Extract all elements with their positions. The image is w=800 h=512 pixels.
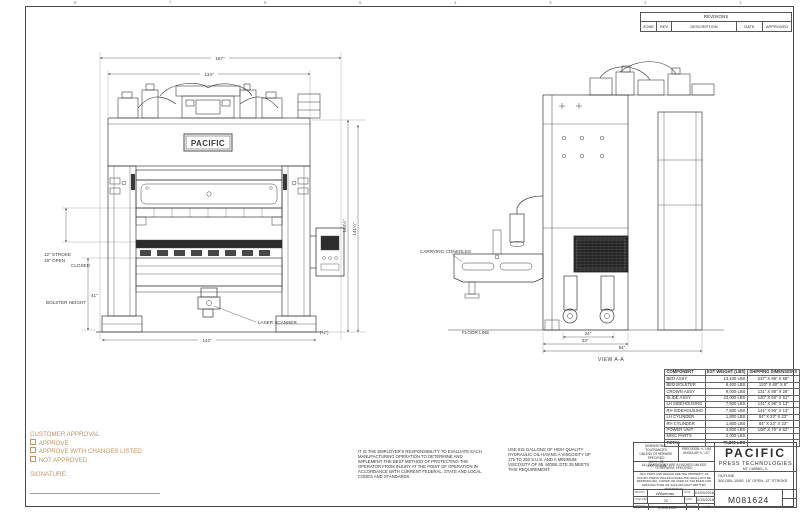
dim-foot: (¾") <box>320 330 329 335</box>
hydraulic-oil-note: USE 515 GALLONS OF HIGH QUALITY HYDRAULI… <box>508 448 596 473</box>
approval-option-label: APPROVE <box>39 440 69 447</box>
side-dim-3: 54" <box>619 345 626 350</box>
label-bolster-height: BOLSTER HEIGHT <box>46 300 86 305</box>
approval-option-label: APPROVE WITH CHANGES LISTED <box>39 448 142 455</box>
label-stroke: 12" STROKE <box>44 252 71 257</box>
checked-date-value: 2/15/2018 <box>697 497 714 503</box>
not-approved-checkbox <box>30 456 36 462</box>
tolerance-title-2: UNLESS OTHERWISE SPECIFIED <box>634 452 678 460</box>
checked-date-label: DATE <box>685 497 697 503</box>
pullback-cylinders <box>545 276 614 330</box>
components-table: COMPONENT EST WEIGHT (LBS) SHIPPING DIME… <box>664 369 800 447</box>
control-pendant <box>310 228 344 276</box>
machine-feet <box>96 316 322 332</box>
drawing-title-value: 300 DBL-10/60, 18" OPEN, 12" STROKE <box>718 479 796 485</box>
front-view: 167" 134" 142" 144½" 141½" 12" STROKE 18… <box>44 52 366 343</box>
title-block: DIMENSIONAL TOLERANCES UNLESS OTHERWISE … <box>633 442 797 508</box>
drawn-row: DRAWN LWiseman DATE 01/09/2018 <box>634 490 714 497</box>
approve-checkbox <box>30 439 36 445</box>
weight-row: WEIGHT 0,000 LBS SCALE 1:16 <box>634 504 714 510</box>
drawn-date-label: DATE <box>683 490 695 496</box>
rev-cell <box>783 499 796 507</box>
side-hydraulics <box>588 62 714 95</box>
company-block: PACIFIC PRESS TECHNOLOGIES MT. CARMEL, I… <box>715 443 796 472</box>
laser-scanner <box>198 288 220 317</box>
size-cell <box>783 490 796 499</box>
company-location: MT. CARMEL, IL <box>715 467 796 471</box>
tolerance-cell-2: PRECISION +/- 1/64 ANGULAR +/- 1/2° <box>679 443 714 461</box>
sheet-rev-cells <box>782 490 796 508</box>
view-label: VIEW A-A <box>598 357 624 363</box>
signature-line <box>30 493 160 494</box>
side-dim-1: 24" <box>585 331 592 336</box>
proprietary-note: THIS PRINT AND DESIGN ARE THE PROPERTY O… <box>634 472 714 490</box>
tolerance-angular: ANGULAR +/- 1/2° <box>679 451 714 455</box>
components-col-weight: EST WEIGHT (LBS) <box>705 370 747 376</box>
table-row: LH CYLINDER1,800 LBS84" X 23" X 23" <box>665 414 800 420</box>
dim-base-width: 142" <box>202 338 212 343</box>
drawn-label: DRAWN <box>634 490 648 496</box>
table-row: LH SIDEHOUSING7,500 LBS141" X 96" X 13" <box>665 401 800 407</box>
checked-row: CHECKED JC DATE 2/15/2018 <box>634 497 714 504</box>
employer-responsibility-note: IT IS THE EMPLOYER'S RESPONSIBILITY TO E… <box>358 450 484 480</box>
pacific-logo-plate: PACIFIC <box>184 134 232 151</box>
left-housing <box>108 166 136 316</box>
slide-assembly <box>136 170 282 225</box>
dim-height-closed: 141½" <box>351 222 357 235</box>
clamp-bar <box>136 240 282 256</box>
dim-inner-width: 134" <box>204 72 214 77</box>
bed-assembly <box>136 258 282 292</box>
power-unit-cabinet <box>658 112 702 330</box>
scale-label: SCALE <box>687 504 700 510</box>
drawn-date-value: 01/09/2018 <box>695 490 714 496</box>
tolerance-cell: DIMENSIONAL TOLERANCES UNLESS OTHERWISE … <box>634 443 679 461</box>
tolerance-title-1: DIMENSIONAL TOLERANCES <box>634 444 678 452</box>
approval-option: APPROVE WITH CHANGES LISTED <box>30 447 142 456</box>
component-name: LH SIDEHOUSING <box>665 401 706 407</box>
label-carrying-consoles: CARRYING CONSOLES <box>420 249 471 254</box>
approval-option: APPROVE <box>30 439 142 448</box>
right-housing <box>282 166 310 316</box>
weight-label: WEIGHT <box>634 504 649 510</box>
carrying-consoles <box>454 230 543 298</box>
approve-with-changes-checkbox <box>30 447 36 453</box>
label-floor-line: FLOOR LINE <box>462 330 489 335</box>
machine-logo: PACIFIC <box>191 139 225 148</box>
drawing-sheet: 8 7 6 5 4 3 2 1 REVISIONS ZONE REV DESCR… <box>0 0 800 512</box>
components-col-dims: SHIPPING DIMENSIONS <box>747 370 799 376</box>
weight-value: 0,000 LBS <box>649 504 687 510</box>
dim-bolster: 41" <box>91 293 98 298</box>
company-subtitle: PRESS TECHNOLOGIES <box>715 461 796 467</box>
front-hydraulics <box>118 83 320 118</box>
drawn-value: LWiseman <box>648 490 683 496</box>
drawing-title-cell: OUTLINE 300 DBL-10/60, 18" OPEN, 12" STR… <box>715 472 796 490</box>
checked-value: JC <box>648 497 684 503</box>
checked-label: CHECKED <box>634 497 648 503</box>
company-name: PACIFIC <box>715 446 796 460</box>
side-dim-2: 33" <box>582 338 589 343</box>
customer-approval-title: CUSTOMER APPROVAL <box>30 431 142 439</box>
label-open: 18" OPEN <box>44 258 65 263</box>
scale-value: 1:16 <box>699 504 714 510</box>
label-closed: CLOSED <box>71 263 91 268</box>
heat-exchanger-grille <box>574 236 628 272</box>
drawing-number: M081624 <box>715 490 782 508</box>
side-view: 24" 33" 54" FLOOR LINE CARRYING CONSOLES… <box>420 62 724 363</box>
approval-option: NOT APPROVED <box>30 456 142 465</box>
units-note: ALL DIMENSIONS ARE IN INCHES UNLESS OTHE… <box>634 462 714 472</box>
label-laser-scanner: LASER SCANNER <box>258 320 297 325</box>
table-row: BED BOLSTER9,400 LBS120" X 60" X 6" <box>665 382 800 388</box>
oil-filter <box>510 196 543 247</box>
signature-label: SIGNATURE: <box>30 471 142 479</box>
customer-approval-block: CUSTOMER APPROVAL APPROVE APPROVE WITH C… <box>30 431 142 479</box>
approval-option-label: NOT APPROVED <box>39 457 88 464</box>
dim-overall-width: 167" <box>215 56 225 61</box>
